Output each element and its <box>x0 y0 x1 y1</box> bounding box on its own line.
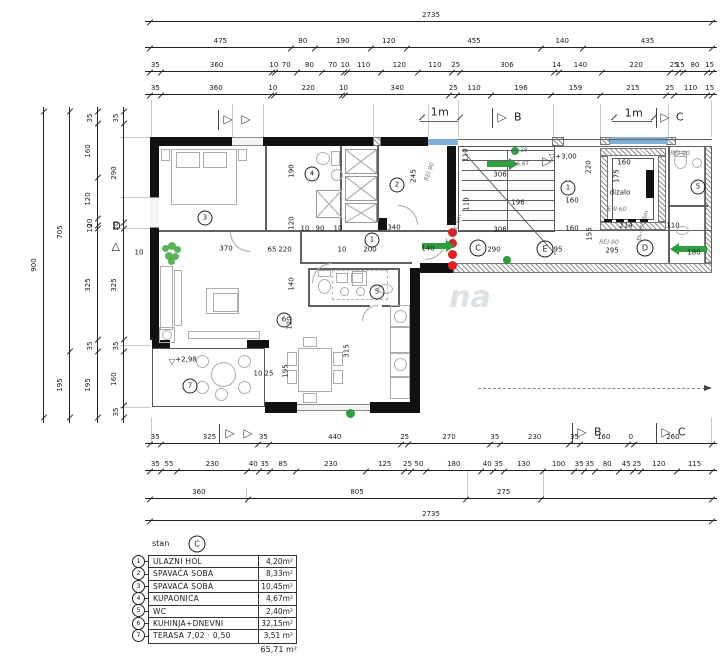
door-swing <box>312 263 332 283</box>
legend-room-area: 32,15m² <box>259 618 296 629</box>
plan-label: 1m <box>625 108 644 119</box>
dimension-value: 80 <box>603 461 612 468</box>
dimension-value: 325 <box>85 278 92 291</box>
dimension-segment: 160 <box>82 124 98 178</box>
dimension-value: 230 <box>206 461 219 468</box>
dimension-value: 230 <box>528 434 541 441</box>
dimension-value: 2735 <box>422 12 440 19</box>
plan-element <box>263 137 373 146</box>
legend-room-area: 10,45m² <box>259 581 296 592</box>
dimension-segment: 195 <box>54 352 70 418</box>
dimension-value: 125 <box>378 461 391 468</box>
dimension-chain: 360805275 <box>150 483 712 499</box>
dimension-segment: 140 <box>541 32 583 48</box>
dimension-segment: 120 <box>82 178 98 219</box>
dimension-value: 260 <box>666 434 679 441</box>
dimension-value: 705 <box>57 225 64 238</box>
dimension-value: 325 <box>111 278 118 291</box>
terrace-chair <box>238 355 251 368</box>
dimension-segment: 220 <box>274 79 342 95</box>
dimension-segment: 25 <box>452 56 460 72</box>
legend-row-connector <box>144 598 148 599</box>
dimension-segment: 50 <box>411 455 426 471</box>
dimension-value: 40 <box>483 461 492 468</box>
dimension-value: 196 <box>514 85 527 92</box>
dimension-segment: 230 <box>500 428 569 444</box>
dimension-value: 110 <box>684 85 697 92</box>
plan-label: 28 <box>521 148 528 154</box>
dimension-value: 270 <box>442 434 455 441</box>
plan-label: 120 <box>289 216 296 229</box>
room-number-circle: 6 <box>277 313 292 328</box>
dimension-segment: 360 <box>161 56 272 72</box>
dimension-value: 35 <box>260 461 269 468</box>
green-dot <box>511 147 519 155</box>
plan-label: 214 <box>619 223 632 230</box>
plan-element <box>604 219 612 222</box>
plan-element <box>668 205 708 207</box>
plan-label: ▽ <box>169 358 175 366</box>
plan-label: 110 <box>666 223 679 230</box>
nightstand <box>161 149 170 161</box>
plan-label: dizalo <box>610 190 631 197</box>
dimension-segment: 35 <box>493 455 504 471</box>
plan-label: B <box>514 112 522 123</box>
elevator-counterweight <box>646 170 654 198</box>
direction-arrow <box>670 243 679 255</box>
dimension-value: 35 <box>151 461 160 468</box>
room-number-circle: 5 <box>370 285 385 300</box>
toilet-tank <box>331 151 340 166</box>
plan-label: ▷ <box>542 155 551 167</box>
dimension-segment: 85 <box>270 455 296 471</box>
dimension-value: 50 <box>414 461 423 468</box>
dimension-value: 159 <box>569 85 582 92</box>
dimension-chain: 2735 <box>150 6 712 22</box>
plan-element <box>356 287 365 296</box>
plant <box>168 258 175 265</box>
boiler <box>162 330 172 340</box>
dimension-segment: 705 <box>54 112 70 352</box>
legend-row: KUPAONICA4,67m² <box>149 593 296 605</box>
axis-circle: D <box>637 240 654 257</box>
legend-room-name: SPAVAĆA SOBA <box>149 568 259 579</box>
dimension-segment: 325 <box>82 229 98 340</box>
plan-element <box>300 262 412 264</box>
dimension-value: 140 <box>574 62 587 69</box>
plan-element <box>120 407 151 408</box>
dimension-value: 220 <box>301 85 314 92</box>
legend-room-name: ULAZNI HOL <box>149 556 259 567</box>
dimension-value: 120 <box>382 38 395 45</box>
dimension-segment: 40 <box>481 455 493 471</box>
dimension-value: 80 <box>305 62 314 69</box>
section-marker-bar <box>656 108 657 128</box>
legend-row: ULAZNI HOL4,20m² <box>149 556 296 568</box>
plan-label: 140 <box>421 246 434 253</box>
room-number-circle: 5 <box>691 180 706 195</box>
dimension-segment: 435 <box>583 32 712 48</box>
legend-row: TERASA 7,02 · 0,503,51 m² <box>149 630 296 642</box>
dimension-segment: 270 <box>408 428 489 444</box>
dimension-value: 360 <box>210 62 223 69</box>
dimension-value: 35 <box>113 113 120 122</box>
wardrobe <box>345 203 377 223</box>
wardrobe <box>345 149 377 174</box>
dimension-segment: 15 <box>707 79 712 95</box>
plan-label: 10 <box>254 371 263 378</box>
plan-element <box>711 146 712 263</box>
dimension-value: 35 <box>113 341 120 350</box>
pillow <box>203 152 227 168</box>
dimension-value: 325 <box>203 434 216 441</box>
dimension-segment: 25 <box>449 79 457 95</box>
dimension-segment: 455 <box>407 32 542 48</box>
plan-label: 306 <box>493 227 506 234</box>
plan-element <box>120 137 151 138</box>
dimension-segment: 195 <box>82 352 98 418</box>
dimension-value: 120 <box>85 192 92 205</box>
elevator-wall <box>600 222 666 230</box>
dimension-segment: 140 <box>559 56 602 72</box>
sink <box>692 158 702 168</box>
dimension-segment: 120 <box>641 455 677 471</box>
dimension-segment: 160 <box>580 428 628 444</box>
dimension-value: 160 <box>85 144 92 157</box>
legend-room-name: KUPAONICA <box>149 593 259 604</box>
plan-label: 155 <box>587 227 594 240</box>
room-number-circle: 1 <box>365 233 380 248</box>
dimension-segment: 275 <box>466 483 541 499</box>
legend-unit-circle: C <box>189 536 206 553</box>
dimension-value: 360 <box>209 85 222 92</box>
dimension-value: 35 <box>151 62 160 69</box>
green-dot <box>346 409 355 418</box>
dimension-value: 35 <box>87 341 94 350</box>
plan-label: 220 <box>586 160 593 173</box>
plan-label: ▷ <box>497 111 506 123</box>
dimension-segment: 340 <box>345 79 449 95</box>
plan-label: 220 <box>278 247 291 254</box>
plan-element <box>247 340 269 348</box>
legend-room-name: SPAVAĆA SOBA <box>149 581 259 592</box>
dimension-value: 35 <box>151 85 160 92</box>
plan-label: 295 <box>605 248 618 255</box>
window <box>232 137 263 146</box>
dimension-segment: 110 <box>674 79 708 95</box>
dimension-segment: 325 <box>161 428 259 444</box>
chair <box>303 337 317 347</box>
dimension-value: 160 <box>111 372 118 385</box>
dimension-segment: 80 <box>297 56 322 72</box>
dimension-value: 80 <box>690 62 699 69</box>
legend-row-connector <box>144 586 148 587</box>
dimension-segment: 130 <box>504 455 543 471</box>
terrace-chair <box>215 388 228 401</box>
plan-element <box>120 197 151 198</box>
dimension-segment: 2735 <box>150 505 712 521</box>
plan-label: 315 <box>344 344 351 357</box>
dimension-segment: 180 <box>426 455 481 471</box>
plan-element <box>553 104 554 137</box>
terrace-chair <box>196 381 209 394</box>
plan-label: 370 <box>219 246 232 253</box>
dimension-value: 100 <box>552 461 565 468</box>
plan-element <box>600 104 601 137</box>
dining-table <box>298 348 332 392</box>
plan-label: 340 <box>387 225 400 232</box>
dimension-segment: 35 <box>150 428 161 444</box>
plan-element <box>419 114 425 120</box>
dimension-value: 70 <box>328 62 337 69</box>
plan-element <box>336 273 348 283</box>
plan-element <box>150 228 159 340</box>
plan-label: 10 <box>338 247 347 254</box>
legend-room-area: 4,67m² <box>259 593 296 604</box>
dimension-value: 120 <box>393 62 406 69</box>
dimension-value: 220 <box>629 62 642 69</box>
plan-label: 95 <box>554 247 563 254</box>
plan-element <box>300 232 302 263</box>
stair-step <box>462 180 554 181</box>
door-swing <box>362 305 378 321</box>
plan-label: 16,67 <box>513 162 529 168</box>
dimension-chain: 35325354402527035230351600260 <box>150 428 712 444</box>
door-swing <box>230 232 250 252</box>
window-glass <box>428 139 458 145</box>
dimension-value: 360 <box>192 489 205 496</box>
legend-unit-label: stan <box>152 539 169 548</box>
dimension-segment: 80 <box>595 455 619 471</box>
dimension-segment: 230 <box>177 455 247 471</box>
dimension-value: 195 <box>85 378 92 391</box>
scale-bar <box>612 121 652 122</box>
legend-room-area: 2,40m² <box>259 606 296 617</box>
dimension-chain: 900 <box>28 112 44 418</box>
plan-label: 245 <box>411 169 418 182</box>
dimension-value: 40 <box>249 461 258 468</box>
dashed-line-arrow <box>704 385 712 391</box>
dimension-segment: 100 <box>543 455 573 471</box>
chair <box>333 370 343 384</box>
dimension-chain: 3536010708070101101201102530614140220251… <box>150 56 712 72</box>
dimension-value: 35 <box>151 434 160 441</box>
dimension-segment: 35 <box>150 79 161 95</box>
dimension-segment: 45 <box>619 455 633 471</box>
plan-element <box>711 100 712 137</box>
dimension-value: 160 <box>597 434 610 441</box>
dimension-value: 115 <box>688 461 701 468</box>
dimension-value: 306 <box>500 62 513 69</box>
stair-step <box>462 220 554 221</box>
plan-element <box>340 287 349 296</box>
door-swing <box>398 205 418 225</box>
plan-element <box>377 146 379 222</box>
dimension-chain: 705195 <box>54 112 70 418</box>
dimension-value: 440 <box>328 434 341 441</box>
stair-step <box>462 210 554 211</box>
dimension-segment: 805 <box>248 483 467 499</box>
kitchen-sink <box>394 310 407 323</box>
dimension-segment: 35 <box>82 340 98 352</box>
kitchen-hob <box>394 358 407 371</box>
sofa <box>160 266 173 330</box>
wardrobe <box>345 176 377 201</box>
direction-arrow <box>487 161 509 167</box>
plan-element <box>351 273 363 283</box>
plan-label: EW-60 <box>607 207 626 213</box>
dimension-value: 110 <box>428 62 441 69</box>
dimension-segment: 35 <box>259 455 270 471</box>
plan-label: 160 <box>565 226 578 233</box>
dimension-segment <box>541 483 712 499</box>
dimension-segment: 475 <box>150 32 291 48</box>
shower <box>316 190 342 218</box>
dimension-segment: 220 <box>602 56 670 72</box>
legend-room-name: WC <box>149 606 259 617</box>
dimension-segment: 120 <box>371 32 407 48</box>
dimension-value: 35 <box>585 461 594 468</box>
dimension-segment: 290 <box>108 124 124 223</box>
dimension-value: 475 <box>214 38 227 45</box>
chair <box>333 352 343 366</box>
dimension-segment: 360 <box>150 483 248 499</box>
dimension-chain: 3555230403585230125255018040351301003535… <box>150 455 712 471</box>
dimension-segment: 196 <box>491 79 551 95</box>
dimension-segment: 25 <box>401 428 409 444</box>
terrace-door <box>297 404 370 411</box>
legend-table: ULAZNI HOL4,20m²SPAVAĆA SOBA8,33m²SPAVAĆ… <box>148 555 297 644</box>
dimension-value: 0 <box>629 434 633 441</box>
plan-element <box>370 402 420 413</box>
dimension-segment: 440 <box>269 428 401 444</box>
dimension-segment: 306 <box>460 56 555 72</box>
plan-label: REI-90 <box>599 240 619 246</box>
coffee-table <box>213 293 238 312</box>
extension-dashed-line <box>478 388 710 390</box>
dimension-value: 290 <box>111 167 118 180</box>
legend-room-name: TERASA 7,02 · 0,50 <box>149 630 259 642</box>
plan-label: 200 <box>363 247 376 254</box>
legend-row-connector <box>144 574 148 575</box>
plan-element <box>410 268 420 402</box>
plan-element <box>308 305 370 307</box>
dimension-segment: 325 <box>108 229 124 340</box>
plan-label: REI 90 <box>424 162 436 182</box>
plan-label: 10 <box>301 226 310 233</box>
plan-label: C <box>676 112 684 123</box>
dimension-value: 15 <box>705 85 714 92</box>
dimension-segment: 230 <box>296 455 366 471</box>
dimension-segment: 80 <box>291 32 315 48</box>
dimension-value: 70 <box>282 62 291 69</box>
plan-element <box>378 218 387 230</box>
plan-label: +2,98 <box>175 357 196 364</box>
dimension-value: 55 <box>165 461 174 468</box>
dimension-segment: 35 <box>569 428 580 444</box>
legend-row: SPAVAĆA SOBA10,45m² <box>149 581 296 593</box>
dimension-segment: 110 <box>457 79 491 95</box>
red-dot <box>448 261 457 270</box>
plan-label: 140 <box>289 277 296 290</box>
dimension-segment: 35 <box>150 455 161 471</box>
dimension-value: 45 <box>622 461 631 468</box>
dimension-value: 120 <box>652 461 665 468</box>
plan-label: ▷ <box>223 113 232 125</box>
dimension-segment: 80 <box>683 56 708 72</box>
dimension-segment: 25 <box>633 455 641 471</box>
dimension-chain: 353601022010340251101961592152511015 <box>150 79 712 95</box>
plan-element <box>373 104 374 137</box>
dimension-value: 2735 <box>422 511 440 518</box>
dimension-segment: 40 <box>247 455 259 471</box>
dimension-segment: 110 <box>347 56 381 72</box>
dimension-value: 275 <box>497 489 510 496</box>
dimension-segment: 35 <box>108 112 124 124</box>
dimension-segment: 35 <box>82 112 98 124</box>
plan-label: na <box>449 283 491 313</box>
plan-element <box>151 100 152 137</box>
plan-element <box>150 146 159 197</box>
kitchen-unit <box>390 327 410 353</box>
dimension-segment: 70 <box>275 56 297 72</box>
legend-room-area: 4,20m² <box>259 556 296 567</box>
legend-row: KUHINJA+DNEVNI BORAVAK32,15m² <box>149 618 296 630</box>
dimension-value: 180 <box>447 461 460 468</box>
dimension-segment: 160 <box>108 352 124 406</box>
plan-label: 290 <box>487 247 500 254</box>
stair-step <box>462 170 554 171</box>
dimension-segment: 55 <box>161 455 178 471</box>
room-number-circle: 1 <box>561 181 576 196</box>
legend-total: 65,71 m² <box>238 645 297 654</box>
legend-row-connector <box>144 623 148 624</box>
room-number-circle: 2 <box>390 178 405 193</box>
window <box>150 197 159 228</box>
dimension-chain: 2735 <box>150 505 712 521</box>
axis-circle: C <box>470 240 487 257</box>
plan-label: 175 <box>614 169 621 182</box>
dimension-value: 435 <box>641 38 654 45</box>
dimension-value: 80 <box>298 38 307 45</box>
plan-label: 160 <box>565 198 578 205</box>
dimension-value: 35 <box>570 434 579 441</box>
dimension-value: 85 <box>278 461 287 468</box>
scale-bar <box>420 121 458 122</box>
plan-element <box>308 268 310 307</box>
legend-row-connector <box>144 561 148 562</box>
kitchen-unit <box>390 377 410 399</box>
dimension-value: 110 <box>357 62 370 69</box>
section-marker-bar <box>218 110 219 130</box>
plan-element <box>263 104 264 137</box>
room-number-circle: 7 <box>183 379 198 394</box>
plan-label: 195 <box>283 364 290 377</box>
dimension-value: 455 <box>467 38 480 45</box>
dimension-value: 35 <box>494 461 503 468</box>
plan-label: 160 <box>617 160 630 167</box>
dimension-value: 805 <box>350 489 363 496</box>
dimension-segment: 190 <box>315 32 371 48</box>
dimension-value: 110 <box>467 85 480 92</box>
legend-row-connector <box>144 611 148 612</box>
dimension-segment: 2735 <box>150 6 712 22</box>
room-number-circle: 3 <box>198 211 213 226</box>
dimension-segment: 25 <box>404 455 412 471</box>
dimension-segment: 35 <box>584 455 595 471</box>
legend-room-name: KUHINJA+DNEVNI BORAVAK <box>149 618 259 629</box>
elevator-wall <box>658 156 666 222</box>
